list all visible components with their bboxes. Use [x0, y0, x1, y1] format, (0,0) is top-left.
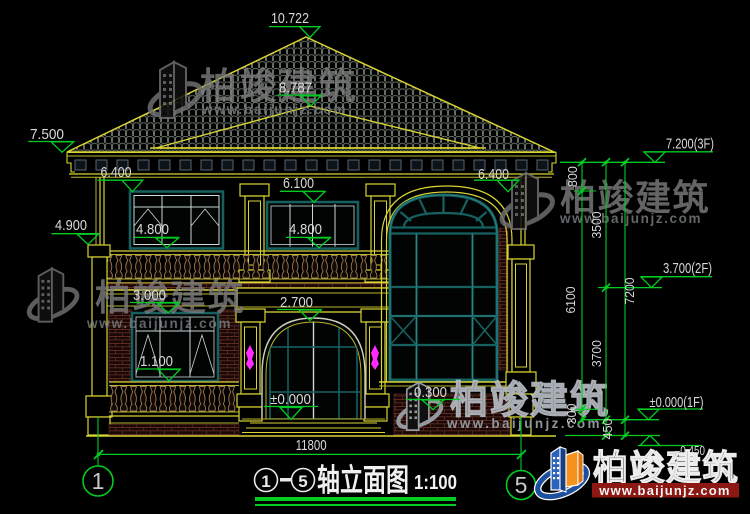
svg-text:www.baijunjz.com: www.baijunjz.com — [86, 316, 232, 331]
svg-text:6100: 6100 — [563, 287, 578, 314]
svg-text:±0.000(1F): ±0.000(1F) — [650, 394, 704, 411]
svg-text:3.000: 3.000 — [133, 287, 166, 304]
svg-text:2.700: 2.700 — [280, 294, 313, 311]
svg-text:柏竣建筑: 柏竣建筑 — [593, 448, 739, 488]
svg-text:4.900: 4.900 — [55, 217, 87, 234]
svg-text:www.baijunjz.com: www.baijunjz.com — [559, 211, 702, 226]
svg-text:800: 800 — [565, 166, 580, 187]
svg-text:±0.000: ±0.000 — [270, 391, 311, 408]
svg-text:1:100: 1:100 — [414, 472, 457, 494]
svg-text:300: 300 — [564, 404, 579, 425]
svg-text:3.700(2F): 3.700(2F) — [663, 260, 712, 277]
svg-text:5: 5 — [515, 472, 528, 498]
svg-text:4.800: 4.800 — [136, 221, 169, 238]
svg-text:7.200(3F): 7.200(3F) — [666, 136, 714, 153]
svg-text:1.100: 1.100 — [140, 353, 173, 370]
svg-text:3700: 3700 — [589, 340, 604, 367]
svg-text:6.400: 6.400 — [101, 164, 132, 181]
svg-text:10.722: 10.722 — [271, 10, 309, 27]
svg-text:4.800: 4.800 — [289, 221, 322, 238]
svg-text:1: 1 — [261, 472, 270, 491]
svg-text:0.300: 0.300 — [414, 384, 447, 401]
svg-text:www.baijunjz.com: www.baijunjz.com — [201, 102, 347, 117]
svg-text:轴立面图: 轴立面图 — [317, 463, 409, 498]
svg-text:5: 5 — [298, 472, 307, 491]
svg-text:6.100: 6.100 — [283, 175, 314, 192]
svg-text:7.500: 7.500 — [30, 126, 64, 143]
svg-text:1: 1 — [92, 468, 105, 494]
svg-text:8.787: 8.787 — [279, 80, 312, 97]
svg-text:11800: 11800 — [296, 437, 327, 454]
svg-text:7200: 7200 — [622, 278, 637, 305]
svg-text:www.baijunjz.com: www.baijunjz.com — [598, 483, 730, 498]
svg-text:3500: 3500 — [589, 212, 604, 239]
svg-text:450: 450 — [600, 419, 615, 440]
